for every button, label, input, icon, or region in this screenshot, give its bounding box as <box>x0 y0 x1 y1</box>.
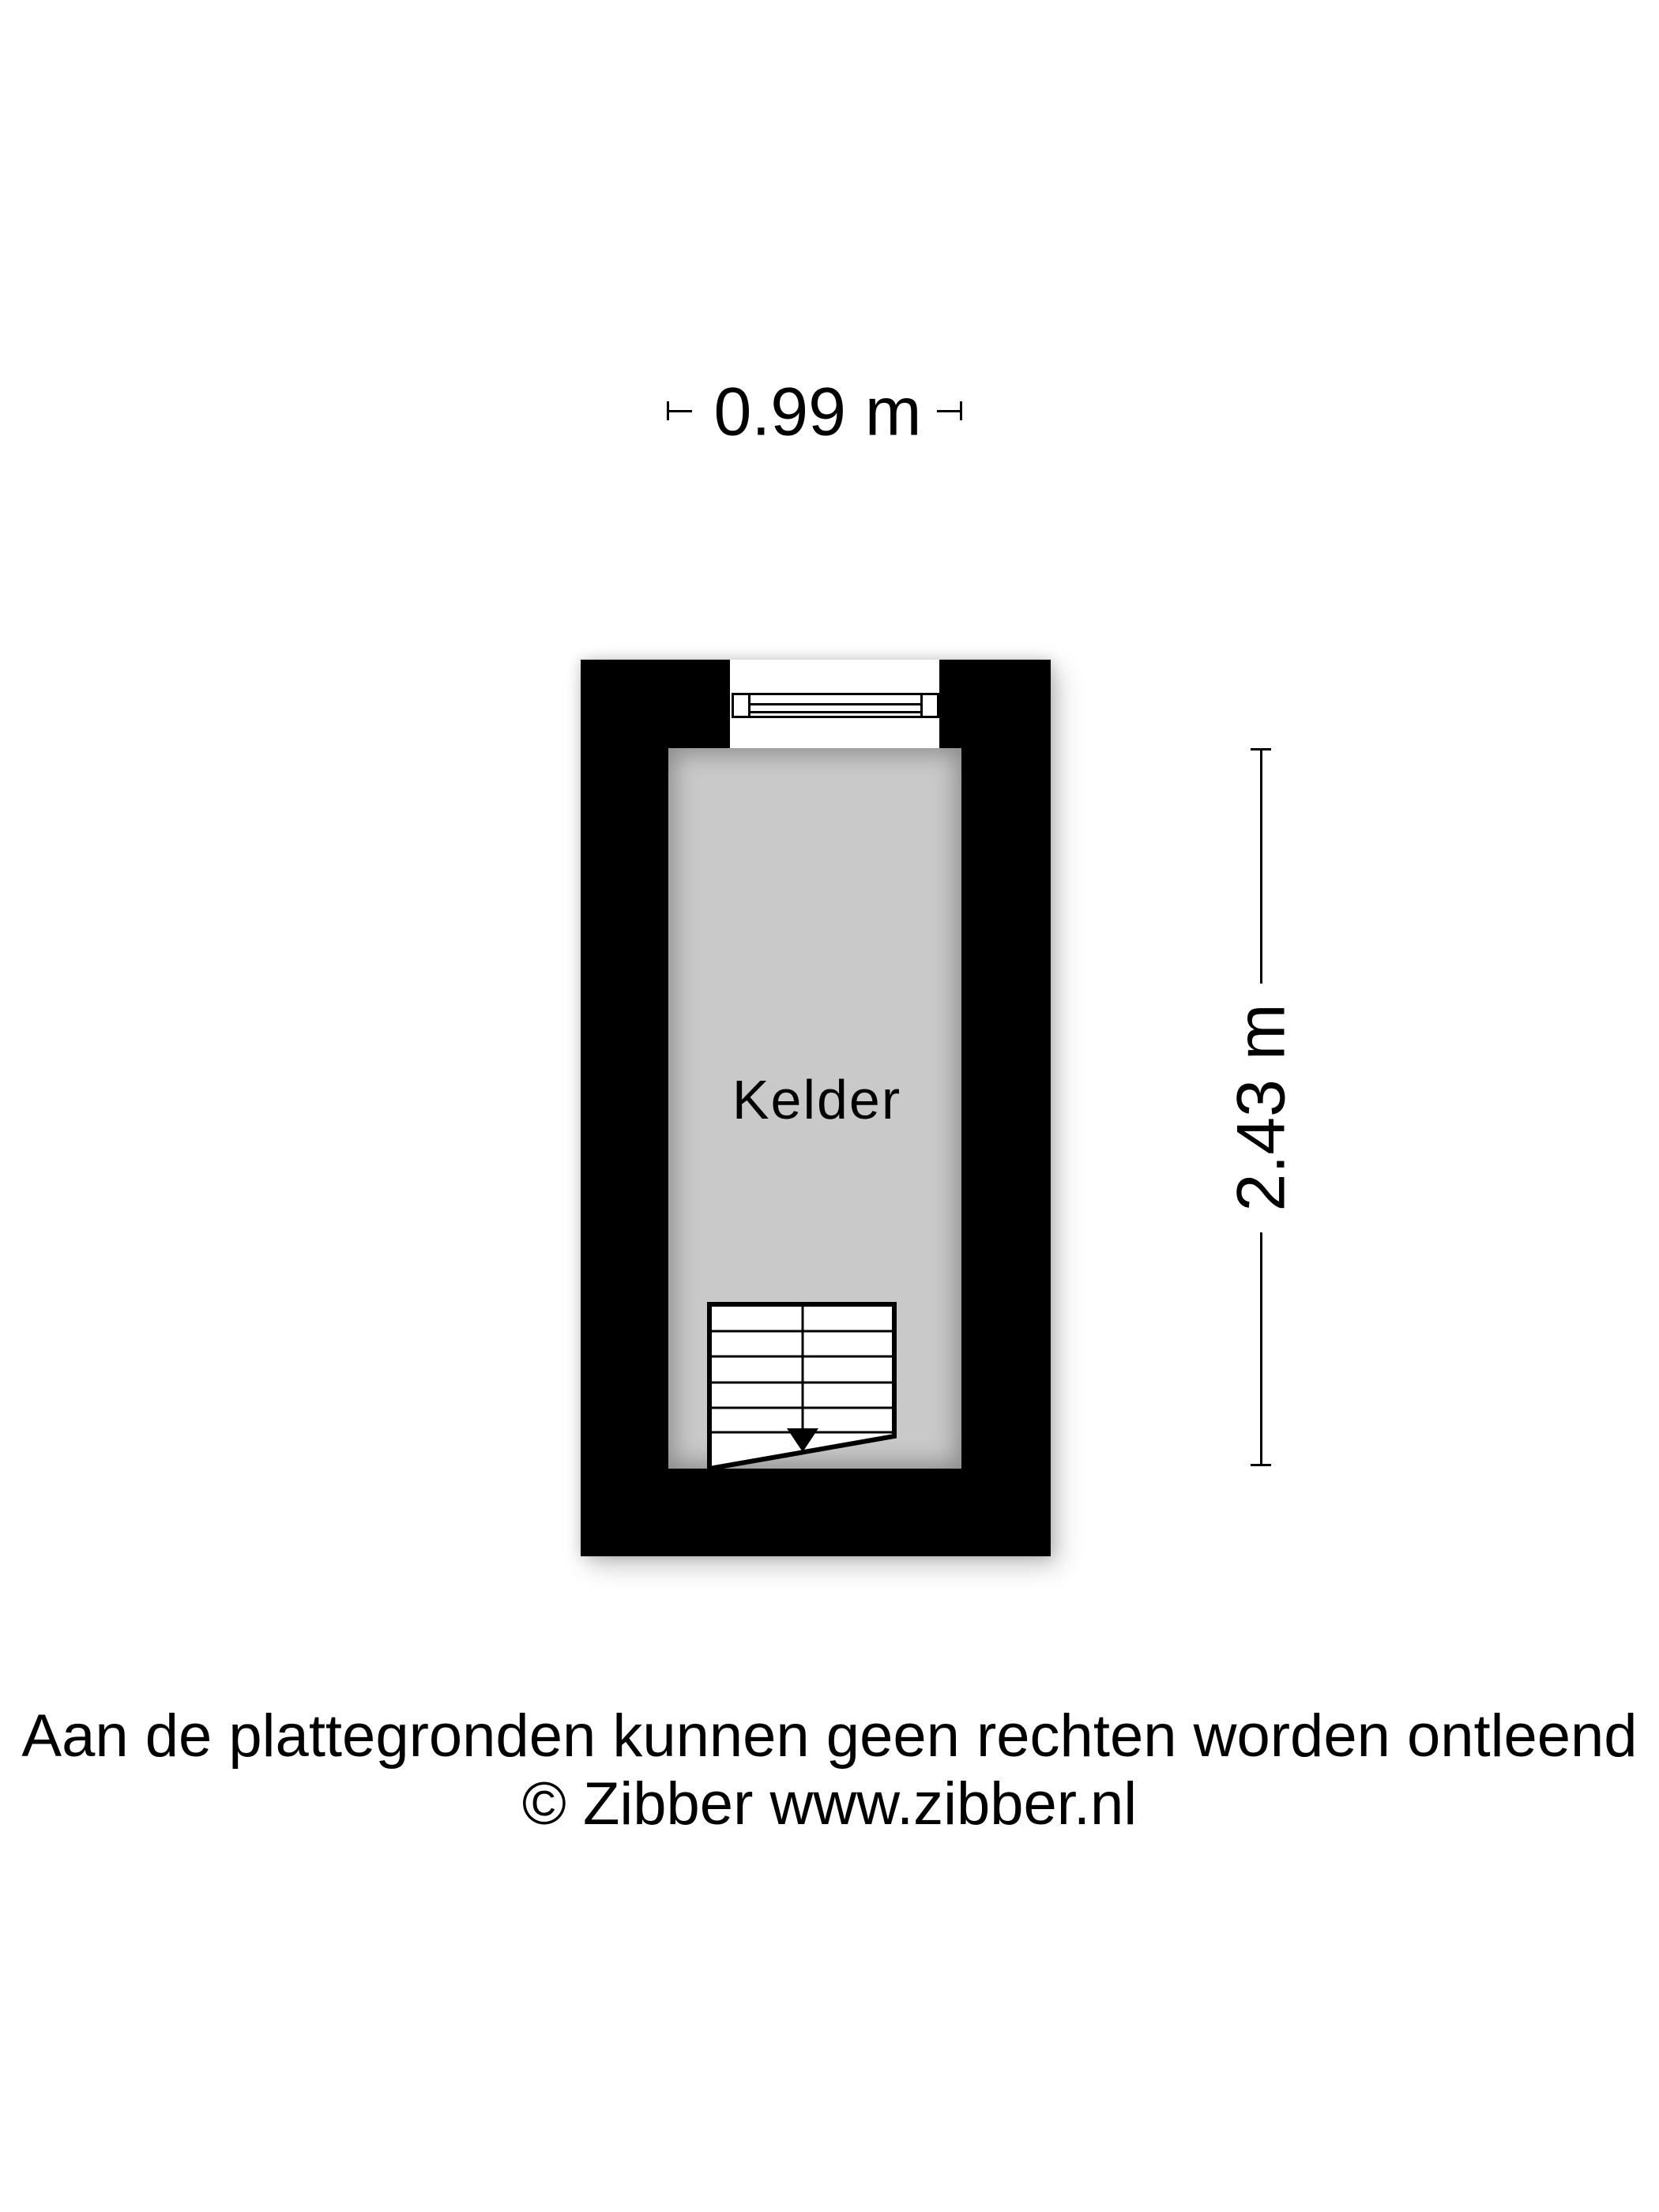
disclaimer-text: Aan de plattegronden kunnen geen rechten… <box>0 1702 1659 1770</box>
stairs-icon <box>707 1302 897 1472</box>
window-right-cap <box>920 695 937 716</box>
width-dimension-label: 0.99 m <box>714 374 922 452</box>
floorplan-canvas: Kelder 0.99 m 2.43 m Aan de plattegronde… <box>0 0 1659 2212</box>
width-dim-line-right <box>937 410 960 412</box>
height-dimension-label: 2.43 m <box>1223 1004 1301 1212</box>
width-dim-line-left <box>669 410 692 412</box>
copyright-text: © Zibber www.zibber.nl <box>0 1770 1659 1838</box>
height-dim-tick-bottom <box>1251 1464 1271 1466</box>
window-left-cap <box>734 695 750 716</box>
window-icon <box>732 693 939 718</box>
room-label: Kelder <box>732 1068 901 1131</box>
window-glazing <box>750 695 920 716</box>
height-dim-line-upper <box>1260 749 1262 984</box>
footer: Aan de plattegronden kunnen geen rechten… <box>0 1702 1659 1838</box>
width-dim-tick-right <box>960 401 962 420</box>
height-dim-line-lower <box>1260 1232 1262 1465</box>
